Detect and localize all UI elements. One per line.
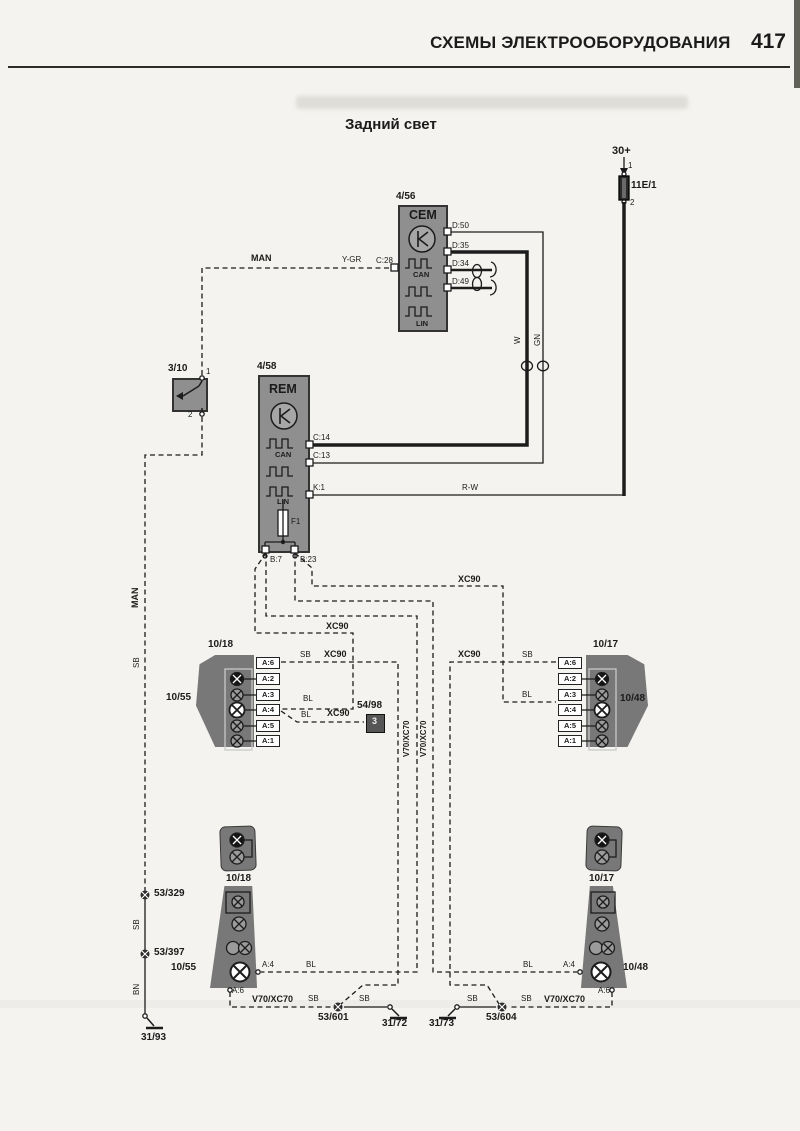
dashed-harness	[145, 268, 612, 1007]
pin-label: A:1	[262, 737, 274, 745]
pin-a6-left-label: A:6	[232, 987, 244, 995]
connector-10-17-pin-2: A:2	[558, 673, 582, 685]
bottom-right-connector-label: 10/17	[589, 874, 614, 884]
left-taillamp-bulbs	[225, 669, 256, 750]
cem-pin-d35: D:35	[452, 242, 469, 250]
splice-53-329-label: 53/329	[154, 889, 185, 899]
pin-d35	[444, 248, 451, 255]
lin-wave-icon	[405, 307, 432, 316]
wire-label-v70-4: V70/XC70	[544, 995, 585, 1004]
wire-label-rw: R-W	[462, 484, 478, 492]
splice-53-397-label: 53/397	[154, 948, 185, 958]
pin-label: A:4	[564, 706, 576, 714]
trailer-pin3-label: 3	[372, 717, 377, 726]
switch-arrow-icon	[176, 392, 183, 400]
wire-label-sb-2: SB	[300, 651, 311, 659]
cem-pin-c28: C:28	[376, 257, 393, 265]
wire-label-xc90-5: XC90	[327, 709, 350, 718]
pin-c28	[391, 264, 398, 271]
wire-label-xc90-1: XC90	[458, 575, 481, 584]
trailer-id-label: 54/98	[357, 701, 382, 711]
rem-pin-b23: B:23	[300, 556, 316, 564]
splice-53-604-label: 53/604	[486, 1013, 517, 1023]
pin-d49	[444, 284, 451, 291]
wire-label-sb-8: SB	[521, 995, 532, 1003]
lin-wave-icon	[266, 487, 293, 496]
wire-label-bl-4: BL	[306, 961, 316, 969]
rem-can-label: CAN	[275, 451, 291, 459]
rem-lin-label: LIN	[277, 498, 289, 506]
connector-10-17-pin-6: A:1	[558, 735, 582, 747]
ground-chain-left	[141, 891, 164, 1029]
wire-man-path	[202, 268, 391, 375]
wire-label-sb-7: SB	[467, 995, 478, 1003]
cem-pin-d49: D:49	[452, 278, 469, 286]
pin-label: A:4	[262, 706, 274, 714]
bottom-right-upper-lamp-bulbs	[595, 833, 616, 864]
bulb-icon	[590, 942, 603, 955]
connector-10-17-pin-4: A:4	[558, 704, 582, 716]
can-wave-icon	[405, 287, 432, 296]
wire-sb-right	[450, 662, 556, 1004]
connector-10-18-pin-5: A:5	[256, 720, 280, 732]
wire-label-ygr: Y-GR	[342, 256, 361, 264]
rem-pin-c13: C:13	[313, 452, 330, 460]
cem-pin-d34: D:34	[452, 260, 469, 268]
pin-a6-right-label: A:6	[598, 987, 610, 995]
cem-name-label: CEM	[409, 209, 437, 222]
cem-id-label: 4/56	[396, 192, 415, 202]
control-module-icon	[409, 226, 435, 252]
pin-label: A:3	[262, 691, 274, 699]
can-wave-icon	[266, 439, 293, 448]
ground-31-93-label: 31/93	[141, 1033, 166, 1043]
bottom-left-lamp-bulbs	[226, 892, 260, 992]
connector-10-18-pin-3: A:3	[256, 689, 280, 701]
pin-c13	[306, 459, 313, 466]
wire-label-bn: BN	[133, 984, 141, 995]
bulb-icon	[227, 942, 240, 955]
wire-label-man-2: MAN	[131, 588, 140, 609]
can-wave-icon	[266, 467, 293, 476]
pin-label: A:3	[564, 691, 576, 699]
rem-pin-b7: B:7	[270, 556, 282, 564]
wire-label-sb-5: SB	[308, 995, 319, 1003]
connector-10-18-pin-2: A:2	[256, 673, 280, 685]
pin-label: A:2	[262, 675, 274, 683]
wire-label-bl-5: BL	[523, 961, 533, 969]
pin-d34	[444, 266, 451, 273]
rem-pin-c14: C:14	[313, 434, 330, 442]
ground-chain-bottom	[334, 1003, 507, 1019]
bottom-left-connector-label: 10/18	[226, 874, 251, 884]
ground-31-73-label: 31/73	[429, 1019, 454, 1029]
pin-a4-right-label: A:4	[563, 961, 575, 969]
pin-label: A:5	[262, 722, 274, 730]
control-module-icon	[271, 403, 297, 429]
connector-10-17-pin-3: A:3	[558, 689, 582, 701]
right-connector-label: 10/17	[593, 640, 618, 650]
cem-can-label: CAN	[413, 271, 429, 279]
switch-pin2-label: 2	[188, 411, 192, 419]
left-lamp-label: 10/55	[166, 693, 191, 703]
bottom-right-lamp-label: 10/48	[623, 963, 648, 973]
splice-53-601-label: 53/601	[318, 1013, 349, 1023]
pin-d50	[444, 228, 451, 235]
bottom-right-lamp-bulbs	[578, 892, 615, 992]
switch-id-label: 3/10	[168, 364, 187, 374]
ground-31-72-label: 31/72	[382, 1019, 407, 1029]
connector-10-17-pin-5: A:5	[558, 720, 582, 732]
bottom-left-upper-lamp-bulbs	[230, 833, 252, 864]
right-taillamp-bulbs	[582, 669, 616, 750]
wire-label-bl-2: BL	[522, 691, 532, 699]
wire-label-sb-6: SB	[359, 995, 370, 1003]
pin-c14	[306, 441, 313, 448]
connector-10-17-pin-1: A:6	[558, 657, 582, 669]
pin-b7	[262, 546, 269, 553]
wire-w	[310, 252, 527, 445]
bottom-left-lamp-label: 10/55	[171, 963, 196, 973]
wire-label-w: W	[514, 336, 522, 344]
wire-label-sb-1: SB	[133, 657, 141, 668]
wire-label-gn: GN	[534, 334, 542, 346]
pin-k1	[306, 491, 313, 498]
wire-label-bl-3: BL	[301, 711, 311, 719]
scanned-wiring-diagram-page: СХЕМЫ ЭЛЕКТРООБОРУДОВАНИЯ 417 Задний све…	[0, 0, 800, 1131]
terminal-30-label: 30+	[612, 146, 631, 157]
rem-name-label: REM	[269, 383, 297, 396]
cem-wires	[310, 232, 623, 495]
wire-label-sb-3: SB	[522, 651, 533, 659]
pin-label: A:6	[262, 659, 274, 667]
wire-b7-xc90	[255, 553, 353, 709]
pin-label: A:1	[564, 737, 576, 745]
wire-label-v70-3: V70/XC70	[252, 995, 293, 1004]
wire-label-xc90-4: XC90	[458, 650, 481, 659]
wire-man-ground-path	[145, 417, 202, 895]
power-feed-30	[619, 157, 629, 496]
switch-pin1-label: 1	[206, 368, 210, 376]
wire-label-man: MAN	[251, 254, 272, 263]
wire-trailer-bl	[281, 711, 364, 722]
wire-label-v70-2: V70/XC70	[420, 721, 428, 757]
rem-module-symbols	[262, 403, 313, 558]
fuse-pin2-label: 2	[630, 199, 634, 207]
wire-b7-v70	[261, 553, 417, 972]
wire-label-bl-1: BL	[303, 695, 313, 703]
connector-10-18-pin-4: A:4	[256, 704, 280, 716]
wire-label-sb-4: SB	[133, 919, 141, 930]
pin-label: A:2	[564, 675, 576, 683]
connector-10-18-pin-6: A:1	[256, 735, 280, 747]
can-wave-icon	[405, 259, 432, 268]
pin-b23	[291, 546, 298, 553]
fuse-pin1-label: 1	[628, 162, 632, 170]
wire-label-xc90-2: XC90	[326, 622, 349, 631]
cem-lin-label: LIN	[416, 320, 428, 328]
wire-b23-v70	[295, 553, 577, 972]
pin-label: A:6	[564, 659, 576, 667]
rem-f1-label: F1	[291, 518, 300, 526]
fuse-label: 11E/1	[631, 181, 657, 191]
cem-pin-d50: D:50	[452, 222, 469, 230]
right-lamp-label: 10/48	[620, 694, 645, 704]
connector-10-18-pin-1: A:6	[256, 657, 280, 669]
wire-label-xc90-3: XC90	[324, 650, 347, 659]
wiring-diagram-graphics	[0, 0, 800, 1131]
pin-a4-left-label: A:4	[262, 961, 274, 969]
rem-id-label: 4/58	[257, 362, 276, 372]
rem-pin-k1: K:1	[313, 484, 325, 492]
left-connector-label: 10/18	[208, 640, 233, 650]
wire-label-v70-1: V70/XC70	[403, 721, 411, 757]
pin-label: A:5	[564, 722, 576, 730]
